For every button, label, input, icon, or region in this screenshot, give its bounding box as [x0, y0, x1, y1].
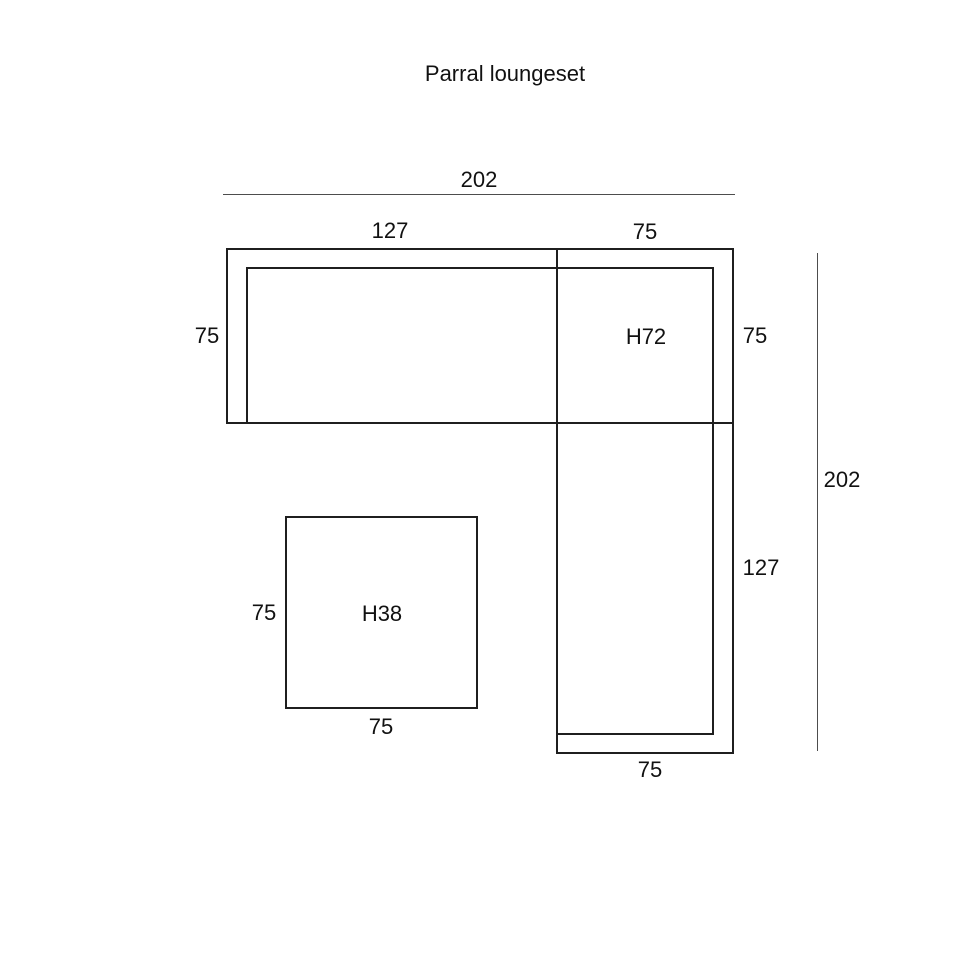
sofa-inner-back-rim-top — [246, 267, 714, 269]
right-dimension-line — [817, 253, 818, 751]
sofa-outer-bottom-edge — [556, 752, 734, 754]
page-title: Parral loungeset — [375, 61, 635, 87]
sofa-front-edge-horizontal-section — [226, 422, 734, 424]
dim-total-width: 202 — [429, 167, 529, 193]
dim-total-height: 202 — [792, 467, 892, 493]
table-height-label: H38 — [332, 601, 432, 627]
dim-corner-section-width: 75 — [595, 219, 695, 245]
dim-table-left-side: 75 — [214, 600, 314, 626]
dimension-drawing: Parral loungeset 202 127 75 75 H72 75 75… — [0, 0, 960, 960]
sofa-outer-top-edge — [226, 248, 734, 250]
sofa-inner-arm-rim-bottom — [556, 733, 714, 735]
dim-table-bottom-side: 75 — [331, 714, 431, 740]
sofa-height-label: H72 — [596, 324, 696, 350]
top-dimension-line — [223, 194, 735, 195]
dim-corner-right-depth: 75 — [705, 323, 805, 349]
dim-right-section-length: 127 — [711, 555, 811, 581]
sofa-section-divider — [556, 248, 558, 754]
dim-left-section-width: 127 — [340, 218, 440, 244]
dim-left-depth: 75 — [157, 323, 257, 349]
dim-bottom-depth: 75 — [600, 757, 700, 783]
